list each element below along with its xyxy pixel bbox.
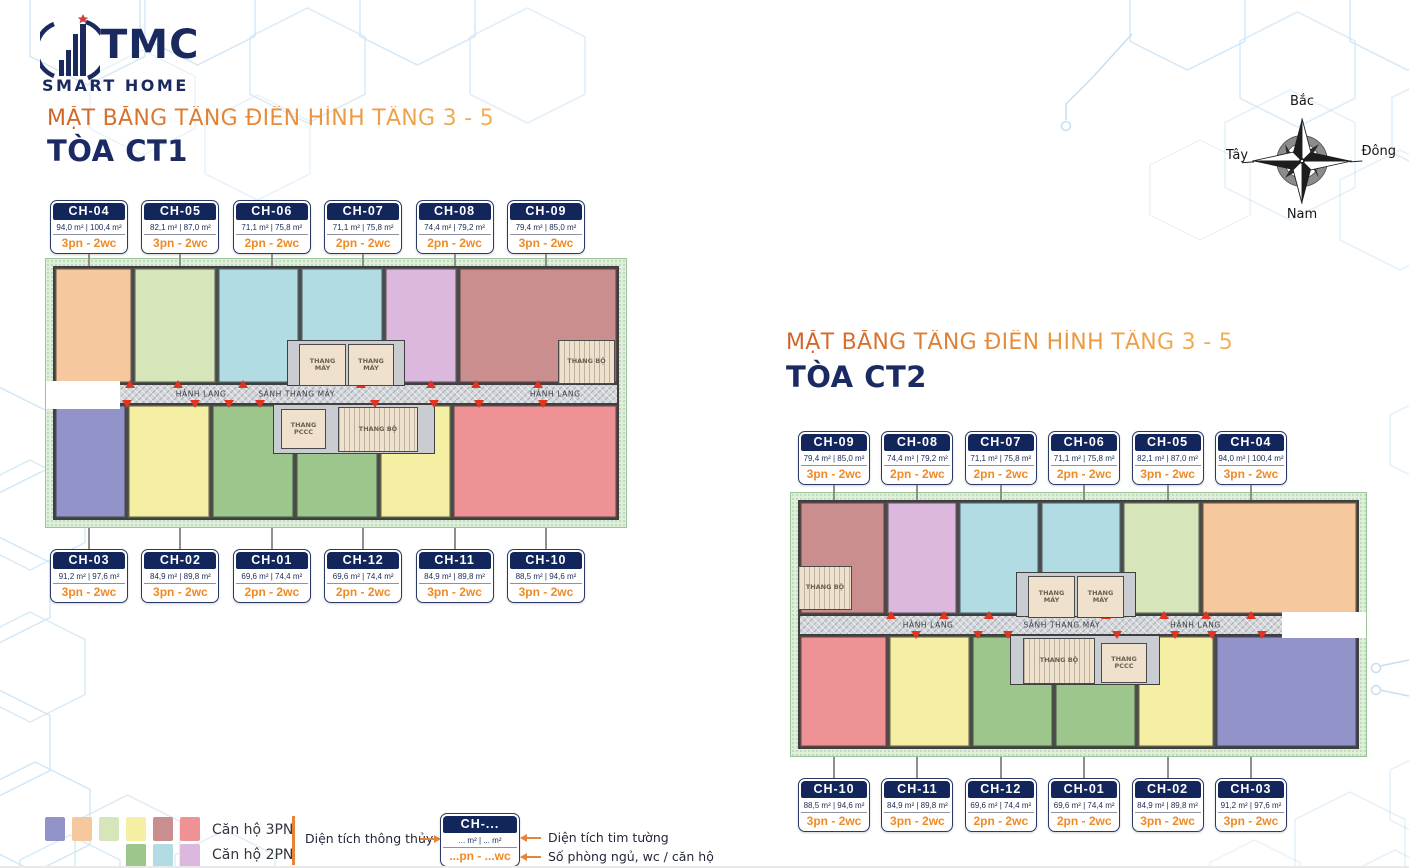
legend-label-2pn: Căn hộ 2PN (212, 847, 293, 863)
legend-swatch (45, 817, 65, 841)
legend-divider (292, 816, 295, 865)
legend-swatch (180, 844, 200, 868)
legend-sample-callout: CH-... ... m² | ... m² ...pn - ...wc (440, 813, 520, 867)
unit-id-label: CH-... (443, 816, 517, 833)
legend-caption-rooms: Số phòng ngủ, wc / căn hộ (548, 849, 714, 864)
unit-area-label: ... m² | ... m² (443, 833, 517, 848)
unit-badge: CH-... ... m² | ... m² ...pn - ...wc (440, 813, 520, 867)
legend-swatch (153, 844, 173, 868)
legend-swatch (72, 817, 92, 841)
brochure-page: TMC SMART HOME (0, 0, 1409, 868)
legend-swatch (180, 817, 200, 841)
legend-swatches-3pn (45, 817, 200, 841)
legend-caption-clear-area: Diện tích thông thủy (305, 831, 417, 846)
arrow-left-icon (526, 837, 541, 839)
unit-rooms-label: ...pn - ...wc (441, 848, 519, 866)
legend: Căn hộ 3PN Căn hộ 2PN Diện tích thông th… (0, 0, 1409, 868)
legend-swatch (126, 844, 146, 868)
arrow-right-icon (420, 838, 435, 840)
legend-swatches-2pn (126, 844, 200, 868)
legend-caption-gross-area: Diện tích tim tường (548, 830, 669, 845)
legend-swatch (99, 817, 119, 841)
legend-label-3pn: Căn hộ 3PN (212, 822, 293, 838)
arrow-left-icon (526, 856, 541, 858)
legend-swatch (153, 817, 173, 841)
legend-swatch (126, 817, 146, 841)
